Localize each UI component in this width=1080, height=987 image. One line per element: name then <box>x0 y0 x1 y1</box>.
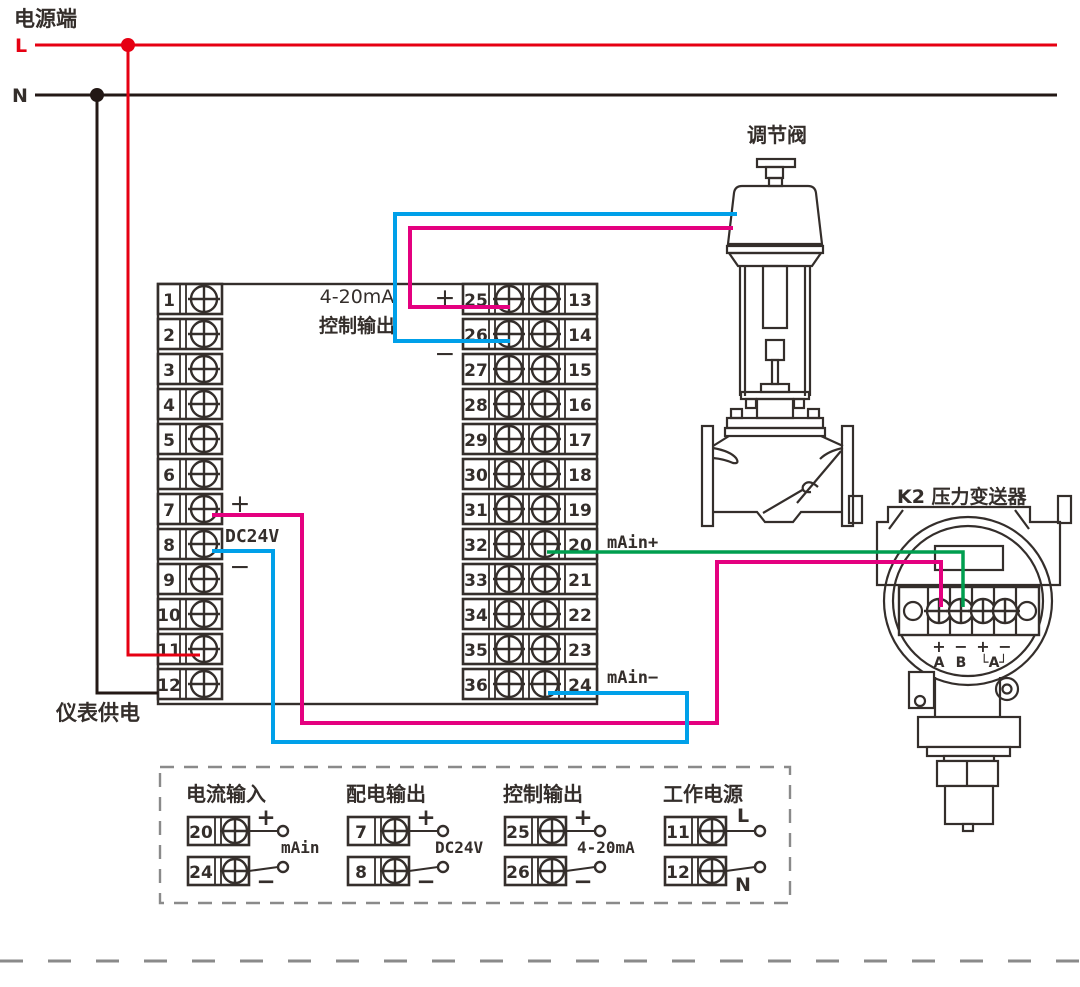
legend-terminal-row: 26− <box>505 857 605 895</box>
terminal-number: 8 <box>355 863 367 883</box>
legend-sign: − <box>416 869 435 895</box>
legend-section-title: 配电输出 <box>346 782 426 806</box>
valve-actuator-skirt <box>729 253 821 266</box>
terminal-row-left: 10 <box>157 599 222 629</box>
supply-label: 仪表供电 <box>55 701 140 725</box>
terminal-row-left: 3 <box>158 354 222 384</box>
terminal-number: 15 <box>568 361 592 381</box>
terminal-number: 6 <box>163 466 175 486</box>
terminal-number: 25 <box>506 823 530 843</box>
valve-body-shoulders <box>713 436 843 446</box>
valve-bonnet-block <box>757 399 793 418</box>
legend-open-terminal <box>755 862 765 872</box>
terminal-number: 13 <box>568 291 592 311</box>
terminal-number: 24 <box>189 863 213 883</box>
power-rails: 电源端 L N <box>12 7 1057 107</box>
terminal-number: 12 <box>157 676 181 696</box>
main-minus-label: mAin− <box>607 668 658 688</box>
terminal-number: 8 <box>163 536 175 556</box>
terminal-row-right: 2513 <box>463 284 597 314</box>
transmitter-terminal-name: B <box>956 655 967 671</box>
legend-center-label: DC24V <box>435 838 484 857</box>
dc24v-label: DC24V <box>225 526 279 547</box>
legend-open-terminal <box>278 826 288 836</box>
legend-sign: + <box>256 805 275 831</box>
terminal-number: 11 <box>157 641 181 661</box>
terminal-number: 17 <box>568 431 592 451</box>
legend-open-terminal <box>755 826 765 836</box>
legend-section: 配电输出7+8−DC24V <box>346 782 484 895</box>
legend-section: 工作电源11L12N <box>663 782 765 896</box>
valve-label: 调节阀 <box>747 123 807 147</box>
legend-section-title: 控制输出 <box>503 782 583 806</box>
legend-open-terminal <box>438 826 448 836</box>
legend-terminal-row: 24− <box>188 857 288 895</box>
legend-open-terminal <box>595 862 605 872</box>
terminal-number: 11 <box>666 823 690 843</box>
terminal-number: 16 <box>568 396 592 416</box>
transmitter-sign: − <box>998 637 1011 656</box>
terminal-number: 21 <box>568 571 592 591</box>
transmitter-sign: − <box>954 637 967 656</box>
right-terminal-strip: 2513261427152816291730183119322033213422… <box>463 284 597 699</box>
output-label-2: 控制输出 <box>319 314 395 337</box>
terminal-row-right: 2614 <box>463 319 597 349</box>
valve-knob-neck <box>766 167 783 178</box>
terminal-row-right: 3018 <box>463 459 597 489</box>
valve-bolt <box>808 409 819 418</box>
terminal-row-left: 6 <box>158 459 222 489</box>
terminal-number: 14 <box>568 326 592 346</box>
terminal-row-right: 3119 <box>463 494 597 524</box>
legend-section: 控制输出25+26−4-20mA <box>503 782 635 895</box>
transmitter-block <box>918 717 1020 747</box>
terminal-row-left: 8 <box>158 529 222 559</box>
valve-bolt <box>794 399 804 408</box>
wiring-diagram: 电源端 L N 123456789101112 2513261427152816… <box>0 0 1080 987</box>
legend-sign: + <box>573 805 592 831</box>
terminal-number: 28 <box>464 396 488 416</box>
valve-actuator-dome <box>728 186 822 244</box>
legend-section-title: 电流输入 <box>186 782 266 806</box>
terminal-number: 36 <box>464 676 488 696</box>
transmitter-inner-window <box>935 546 1003 570</box>
dc24v-minus-sign: − <box>230 552 251 581</box>
legend-sign: − <box>573 869 592 895</box>
legend-section-title: 工作电源 <box>663 782 743 806</box>
valve-yoke-columns <box>740 266 810 396</box>
valve-stem-guide <box>763 266 787 328</box>
terminal-row-right: 3321 <box>463 564 597 594</box>
terminal-number: 26 <box>506 863 530 883</box>
transmitter-plate-1 <box>927 747 1010 756</box>
transmitter-cylinder <box>945 786 993 824</box>
terminal-row-left: 11 <box>157 634 222 664</box>
valve-body-channel <box>763 451 841 513</box>
terminal-number: 1 <box>163 291 175 311</box>
terminal-number: 32 <box>464 536 488 556</box>
transmitter-terminal-name: A <box>934 655 945 671</box>
transmitter-bracket-hole <box>915 696 925 706</box>
valve-body-curl-left <box>713 448 737 463</box>
valve-bonnet-flange <box>727 418 823 428</box>
legend-terminal-row: 12N <box>665 857 765 896</box>
legend-center-label: mAin <box>281 838 320 857</box>
transmitter-label: K2 压力变送器 <box>897 485 1028 508</box>
valve-knob-bar <box>757 159 795 167</box>
terminal-row-left: 1 <box>158 284 222 314</box>
transmitter-terminal-name: └A┘ <box>980 654 1008 671</box>
legend-sign: N <box>735 874 751 896</box>
terminal-number: 3 <box>163 361 175 381</box>
terminal-number: 30 <box>464 466 488 486</box>
legend-terminal-row: 11L <box>665 805 765 845</box>
valve-body-bottom <box>713 512 843 522</box>
legend-sections: 电流输入20+24−mAin配电输出7+8−DC24V控制输出25+26−4-2… <box>186 782 765 896</box>
transmitter-ear-hole <box>1003 685 1012 694</box>
terminal-number: 9 <box>163 571 175 591</box>
pressure-transmitter: K2 压力变送器 +−+−AB└A┘ <box>849 485 1071 831</box>
diagram-canvas: 电源端 L N 123456789101112 2513261427152816… <box>0 0 1080 987</box>
legend-sign: + <box>416 805 435 831</box>
transmitter-tab-left <box>849 496 862 523</box>
terminal-row-right: 2816 <box>463 389 597 419</box>
terminal-row-left: 4 <box>158 389 222 419</box>
transmitter-sign: + <box>932 637 945 656</box>
legend-stub-wire <box>726 867 755 871</box>
valve-stem-coupling <box>766 340 784 360</box>
terminal-number: 12 <box>666 863 690 883</box>
valve-pipe-flange-right <box>842 426 853 526</box>
terminal-number: 31 <box>464 501 488 521</box>
wire-dc24v-minus-to-main-minus <box>212 551 687 742</box>
terminal-number: 22 <box>568 606 592 626</box>
terminal-number: 19 <box>568 501 592 521</box>
terminal-number: 27 <box>464 361 488 381</box>
terminal-row-left: 9 <box>158 564 222 594</box>
terminal-row-right: 2715 <box>463 354 597 384</box>
terminal-number: 2 <box>163 326 175 346</box>
valve-bolt <box>731 409 742 418</box>
terminal-number: 20 <box>189 823 213 843</box>
terminal-number: 33 <box>464 571 488 591</box>
terminal-number: 5 <box>163 431 175 451</box>
legend-center-label: 4-20mA <box>577 838 635 857</box>
legend-open-terminal <box>595 826 605 836</box>
terminal-number: 18 <box>568 466 592 486</box>
legend-open-terminal <box>278 862 288 872</box>
valve-bolt <box>746 399 756 408</box>
terminal-row-left: 2 <box>158 319 222 349</box>
terminal-number: 34 <box>464 606 488 626</box>
terminal-number: 4 <box>163 396 175 416</box>
terminal-number: 23 <box>568 641 592 661</box>
legend-terminal-row: 8− <box>348 857 448 895</box>
terminal-row-left: 12 <box>157 669 222 699</box>
legend-sign: L <box>737 805 749 827</box>
valve-knob-stem <box>769 178 782 186</box>
terminal-row-right: 2917 <box>463 424 597 454</box>
transmitter-sign: + <box>976 637 989 656</box>
valve-stem-plate <box>761 384 789 392</box>
legend-terminal-row: 7+ <box>348 805 448 845</box>
output-label-1: 4-20mA <box>320 286 395 308</box>
legend-terminal-row: 20+ <box>188 805 288 845</box>
terminal-number: 7 <box>355 823 367 843</box>
valve-stem-rod <box>772 360 778 384</box>
terminal-row-left: 5 <box>158 424 222 454</box>
terminal-number: 35 <box>464 641 488 661</box>
left-terminal-strip: 123456789101112 <box>157 284 222 699</box>
terminal-row-right: 3422 <box>463 599 597 629</box>
terminal-row-right: 3523 <box>463 634 597 664</box>
transmitter-tab-right <box>1058 496 1071 523</box>
legend-sign: − <box>256 869 275 895</box>
valve-pipe-flange-left <box>702 426 713 526</box>
control-valve: 调节阀 <box>702 123 853 526</box>
transmitter-terminal-labels: +−+−AB└A┘ <box>932 637 1011 671</box>
output-minus-sign: − <box>435 339 456 368</box>
terminal-row-right: 3220 <box>463 529 597 559</box>
transmitter-tip <box>963 824 973 831</box>
line-n-label: N <box>12 85 28 107</box>
legend-open-terminal <box>438 862 448 872</box>
terminal-number: 7 <box>163 501 175 521</box>
valve-bonnet-flange-2 <box>725 428 825 436</box>
legend-section: 电流输入20+24−mAin <box>186 782 320 895</box>
terminal-row-left: 7 <box>158 494 222 524</box>
main-plus-label: mAin+ <box>607 533 658 553</box>
line-l-label: L <box>15 35 27 57</box>
terminal-number: 10 <box>157 606 181 626</box>
power-title: 电源端 <box>14 7 77 31</box>
terminal-number: 29 <box>464 431 488 451</box>
